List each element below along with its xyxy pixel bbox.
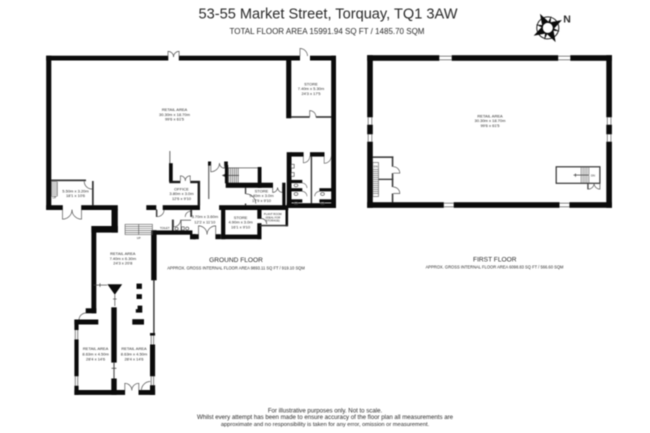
svg-text:TOILET: TOILET — [160, 226, 170, 230]
svg-text:28'4 x 14'6: 28'4 x 14'6 — [86, 357, 106, 362]
svg-text:53-55 Market Street, Torquay,: 53-55 Market Street, Torquay, TQ1 3AW — [198, 6, 457, 22]
svg-text:24'3 x 17'5: 24'3 x 17'5 — [301, 91, 321, 96]
svg-text:17'9 x 9'10: 17'9 x 9'10 — [252, 198, 272, 203]
svg-text:UP: UP — [52, 196, 56, 200]
svg-text:DN: DN — [591, 173, 595, 177]
svg-text:Whilst every attempt has been: Whilst every attempt has been made to en… — [197, 414, 454, 421]
svg-text:24'3 x 20'8: 24'3 x 20'8 — [113, 261, 133, 266]
svg-text:99'6 x 61'5: 99'6 x 61'5 — [165, 117, 185, 122]
svg-text:TOTAL FLOOR AREA 15991.94 SQ F: TOTAL FLOOR AREA 15991.94 SQ FT / 1485.7… — [230, 27, 425, 36]
svg-text:DN: DN — [374, 165, 378, 169]
svg-text:GROUND FLOOR: GROUND FLOOR — [209, 257, 263, 264]
svg-text:16'1 x 9'10: 16'1 x 9'10 — [231, 224, 251, 229]
svg-text:FIRST FLOOR: FIRST FLOOR — [473, 257, 517, 264]
svg-text:APPROX. GROSS INTERNAL FLOOR A: APPROX. GROSS INTERNAL FLOOR AREA 6098.8… — [426, 264, 564, 269]
svg-text:99'6 x 61'5: 99'6 x 61'5 — [480, 123, 500, 128]
svg-text:28'4 x 14'6: 28'4 x 14'6 — [124, 357, 144, 362]
svg-text:12'2 x 11'10: 12'2 x 11'10 — [194, 219, 216, 224]
svg-text:approximate and no responsibil: approximate and no responsibility is tak… — [221, 422, 430, 428]
svg-text:STORAGE): STORAGE) — [266, 219, 280, 223]
svg-text:UP: UP — [137, 236, 141, 240]
svg-text:18'1 x 10'6: 18'1 x 10'6 — [66, 193, 86, 198]
svg-text:12'6 x 9'10: 12'6 x 9'10 — [172, 196, 192, 201]
svg-text:APPROX. GROSS INTERNAL FLOOR A: APPROX. GROSS INTERNAL FLOOR AREA 9893.1… — [167, 265, 305, 270]
svg-text:N: N — [563, 14, 571, 26]
